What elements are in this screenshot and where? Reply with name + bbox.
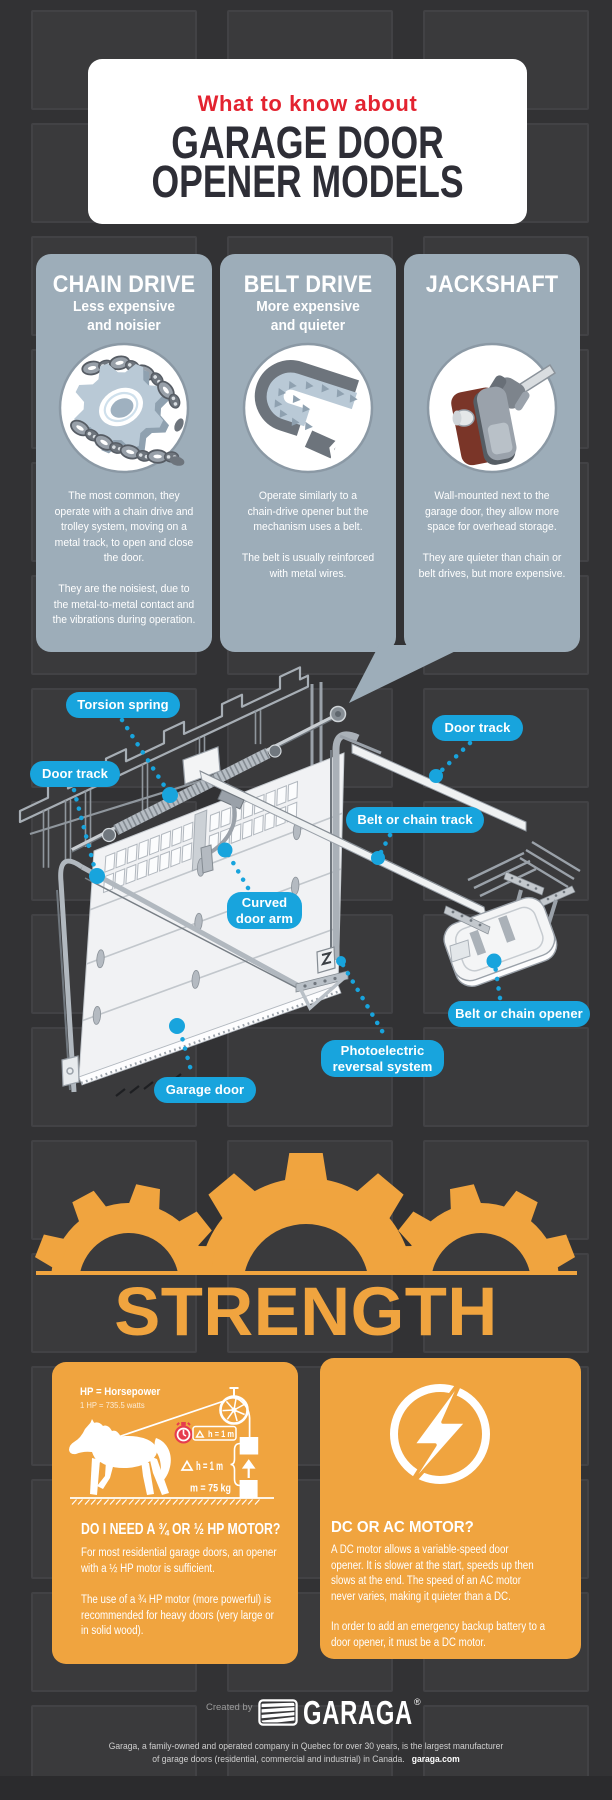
- svg-text:m = 75 kg: m = 75 kg: [190, 1483, 231, 1495]
- svg-text:h = 1 m: h = 1 m: [196, 1461, 223, 1473]
- svg-text:h = 1 m: h = 1 m: [208, 1429, 234, 1439]
